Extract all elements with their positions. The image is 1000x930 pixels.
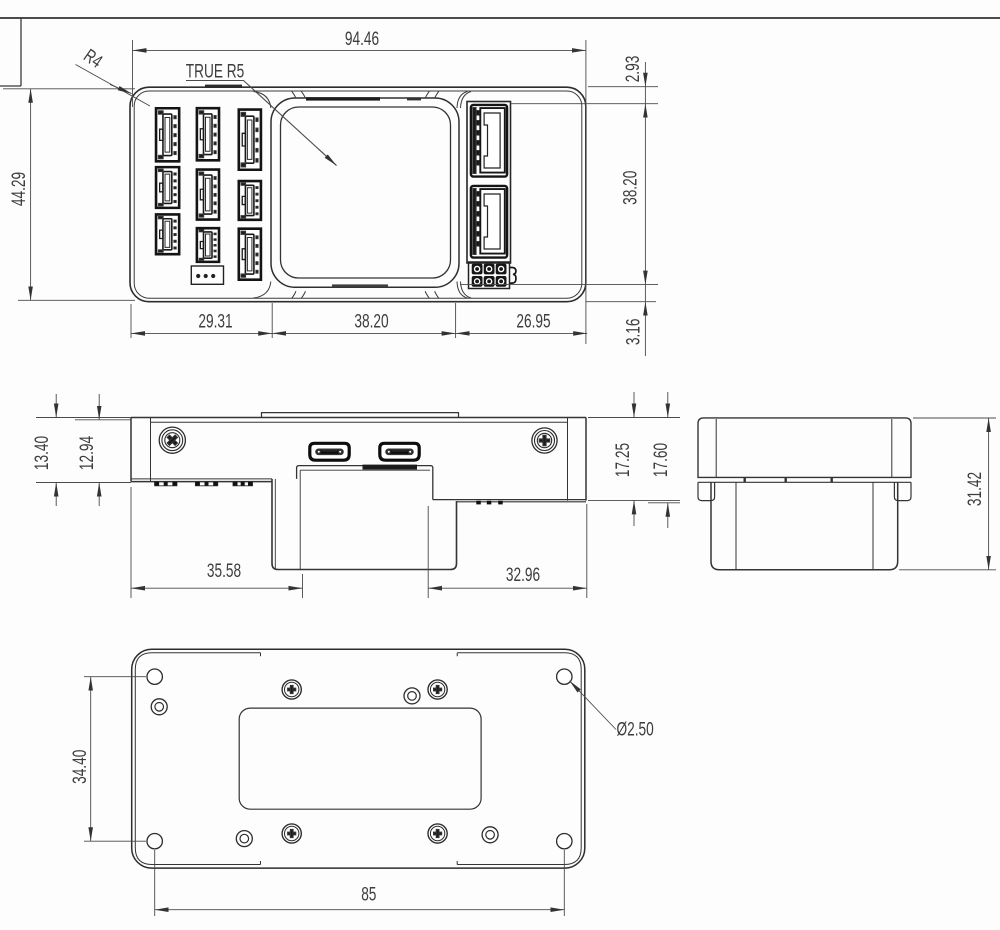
svg-text:38.20: 38.20 [619, 171, 641, 205]
svg-text:34.40: 34.40 [69, 750, 91, 784]
svg-text:85: 85 [361, 883, 376, 905]
svg-text:38.20: 38.20 [354, 310, 388, 332]
svg-text:44.29: 44.29 [8, 172, 30, 206]
svg-text:94.46: 94.46 [345, 28, 379, 50]
svg-text:TRUE R5: TRUE R5 [186, 60, 245, 82]
svg-text:17.60: 17.60 [650, 443, 672, 477]
svg-text:29.31: 29.31 [198, 310, 232, 332]
svg-text:35.58: 35.58 [207, 560, 241, 582]
svg-text:31.42: 31.42 [964, 472, 986, 506]
svg-text:17.25: 17.25 [612, 443, 634, 477]
svg-text:3.16: 3.16 [622, 318, 644, 345]
svg-text:R4: R4 [80, 44, 107, 72]
svg-text:13.40: 13.40 [31, 436, 53, 470]
svg-text:Ø2.50: Ø2.50 [617, 718, 654, 740]
svg-text:26.95: 26.95 [516, 310, 550, 332]
svg-text:12.94: 12.94 [76, 436, 98, 470]
svg-text:2.93: 2.93 [622, 56, 644, 83]
svg-text:32.96: 32.96 [506, 564, 540, 586]
